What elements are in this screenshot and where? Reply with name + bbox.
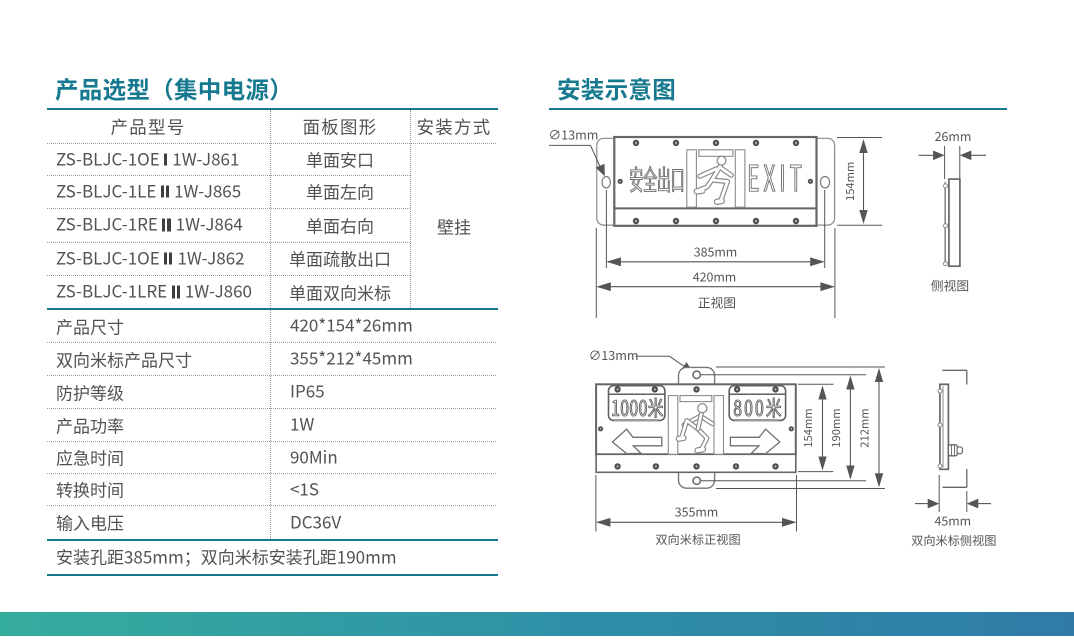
svg-text:154mm: 154mm	[800, 408, 816, 447]
svg-text:154mm: 154mm	[842, 162, 858, 201]
svg-text:355mm: 355mm	[675, 503, 719, 521]
svg-text:∅13mm: ∅13mm	[589, 345, 639, 364]
svg-text:双向米标侧视图: 双向米标侧视图	[911, 531, 996, 549]
svg-text:∅13mm: ∅13mm	[549, 124, 599, 143]
svg-text:双向米标正视图: 双向米标正视图	[655, 530, 740, 548]
svg-text:26mm: 26mm	[935, 127, 972, 145]
svg-text:侧视图: 侧视图	[931, 276, 969, 295]
svg-text:420mm: 420mm	[693, 268, 737, 286]
svg-text:385mm: 385mm	[694, 243, 738, 261]
svg-text:190mm: 190mm	[828, 408, 844, 447]
svg-text:45mm: 45mm	[934, 511, 971, 529]
svg-text:212mm: 212mm	[857, 408, 873, 447]
svg-text:正视图: 正视图	[698, 293, 736, 312]
